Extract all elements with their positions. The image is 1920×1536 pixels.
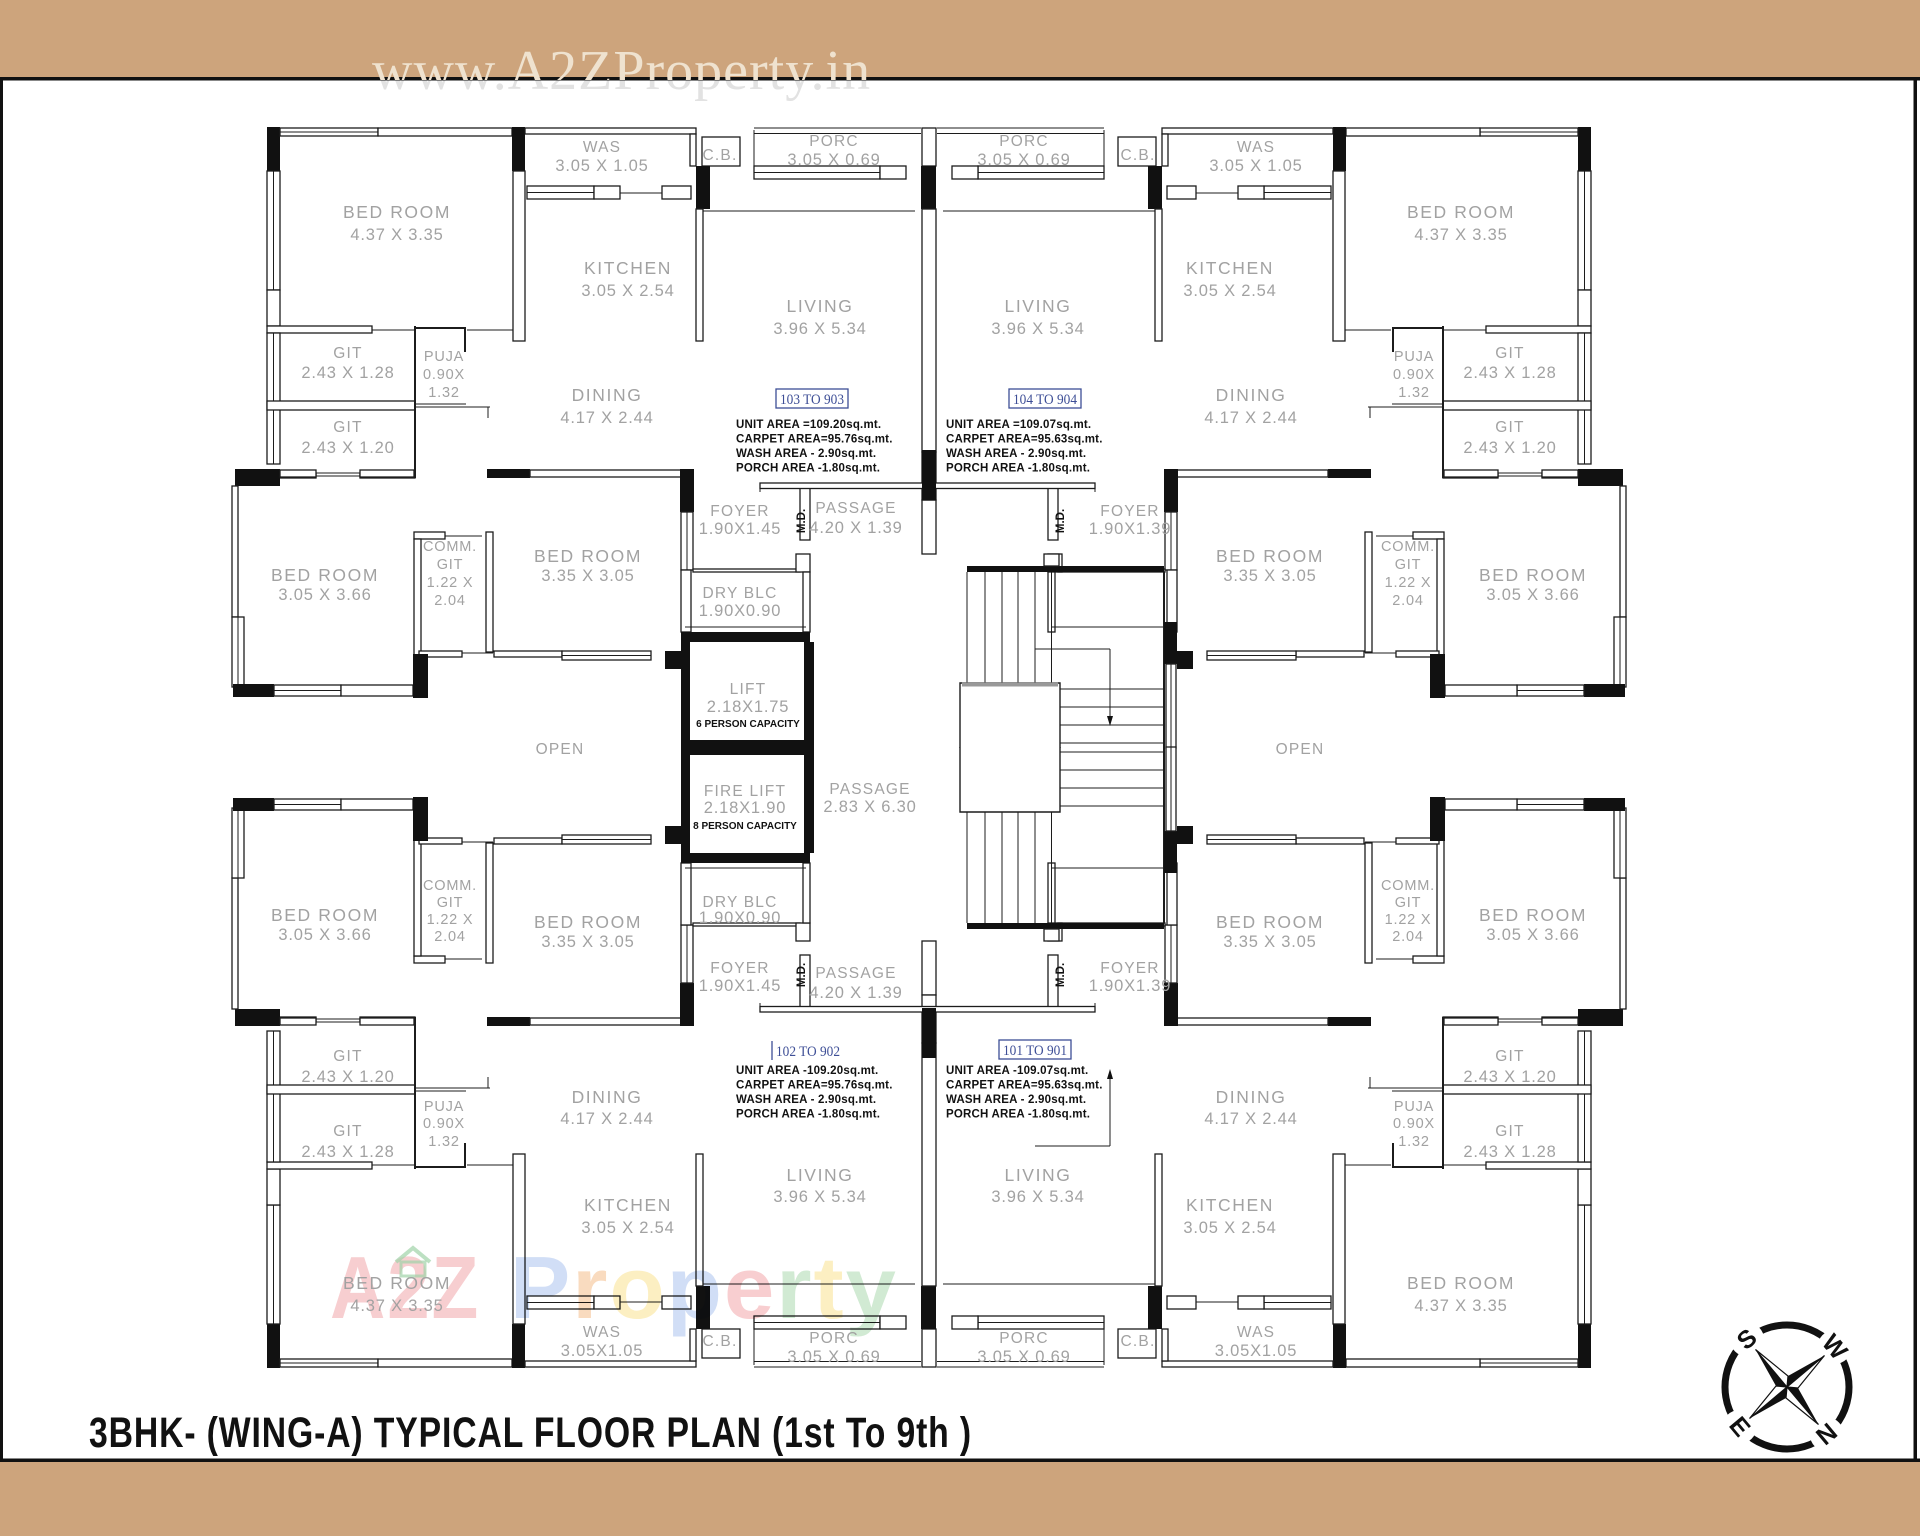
- svg-text:Property: Property: [510, 1238, 898, 1337]
- svg-text:3.05 X 2.54: 3.05 X 2.54: [581, 1219, 674, 1237]
- svg-text:BED ROOM: BED ROOM: [1407, 202, 1515, 222]
- svg-text:2.43 X 1.20: 2.43 X 1.20: [301, 439, 394, 457]
- svg-text:LIVING: LIVING: [1005, 296, 1072, 316]
- svg-text:OPEN: OPEN: [1276, 741, 1325, 758]
- svg-text:PUJA: PUJA: [1394, 349, 1434, 365]
- svg-text:PORCH AREA -1.80sq.mt.: PORCH AREA -1.80sq.mt.: [736, 1109, 880, 1121]
- svg-text:103 TO 903: 103 TO 903: [780, 392, 844, 408]
- svg-text:FIRE LIFT: FIRE LIFT: [704, 783, 786, 800]
- svg-text:LIVING: LIVING: [787, 1165, 854, 1185]
- svg-text:GIT: GIT: [333, 1048, 362, 1065]
- svg-text:BED ROOM: BED ROOM: [271, 565, 379, 585]
- svg-text:WASH AREA - 2.90sq.mt.: WASH AREA - 2.90sq.mt.: [736, 448, 876, 460]
- svg-text:0.90X: 0.90X: [1393, 1116, 1435, 1132]
- svg-text:FOYER: FOYER: [710, 503, 769, 520]
- svg-text:4.37 X 3.35: 4.37 X 3.35: [1414, 1297, 1507, 1315]
- svg-text:3.05 X 3.66: 3.05 X 3.66: [278, 926, 371, 944]
- svg-text:DINING: DINING: [1216, 385, 1287, 405]
- svg-text:3.35 X 3.05: 3.35 X 3.05: [541, 933, 634, 951]
- svg-text:104 TO 904: 104 TO 904: [1013, 392, 1077, 408]
- svg-text:BED ROOM: BED ROOM: [534, 546, 642, 566]
- svg-text:2.04: 2.04: [1392, 929, 1423, 945]
- svg-text:GIT: GIT: [1495, 345, 1524, 362]
- svg-text:2.18X1.90: 2.18X1.90: [704, 799, 786, 817]
- svg-text:1.22 X: 1.22 X: [427, 575, 474, 591]
- svg-text:4.37 X 3.35: 4.37 X 3.35: [350, 226, 443, 244]
- svg-text:3.96 X 5.34: 3.96 X 5.34: [773, 1188, 866, 1206]
- svg-text:PORC: PORC: [809, 1330, 859, 1347]
- svg-text:1.22 X: 1.22 X: [1385, 912, 1432, 928]
- svg-text:GIT: GIT: [333, 1123, 362, 1140]
- svg-text:3.05 X 0.69: 3.05 X 0.69: [977, 151, 1070, 169]
- svg-text:0.90X: 0.90X: [1393, 367, 1435, 383]
- svg-text:2.43 X 1.28: 2.43 X 1.28: [301, 1143, 394, 1161]
- svg-text:PORCH AREA -1.80sq.mt.: PORCH AREA -1.80sq.mt.: [946, 1109, 1090, 1121]
- svg-text:6 PERSON CAPACITY: 6 PERSON CAPACITY: [696, 719, 800, 730]
- svg-text:COMM.: COMM.: [423, 539, 477, 555]
- svg-text:PORCH AREA -1.80sq.mt.: PORCH AREA -1.80sq.mt.: [736, 463, 880, 475]
- svg-text:0.90X: 0.90X: [423, 1116, 465, 1132]
- svg-text:2.04: 2.04: [434, 593, 465, 609]
- svg-text:3.35 X 3.05: 3.35 X 3.05: [1223, 933, 1316, 951]
- svg-text:2.43 X 1.28: 2.43 X 1.28: [301, 364, 394, 382]
- svg-text:2.04: 2.04: [434, 929, 465, 945]
- svg-text:PORC: PORC: [999, 133, 1049, 150]
- svg-text:2.43 X 1.20: 2.43 X 1.20: [301, 1068, 394, 1086]
- svg-text:4.17 X 2.44: 4.17 X 2.44: [560, 1110, 653, 1128]
- svg-text:1.32: 1.32: [1398, 1134, 1429, 1150]
- svg-text:GIT: GIT: [333, 419, 362, 436]
- svg-text:3.96 X 5.34: 3.96 X 5.34: [991, 1188, 1084, 1206]
- svg-text:CARPET AREA=95.63sq.mt.: CARPET AREA=95.63sq.mt.: [946, 1080, 1103, 1092]
- svg-text:3.05 X 3.66: 3.05 X 3.66: [1486, 586, 1579, 604]
- svg-text:GIT: GIT: [1495, 419, 1524, 436]
- svg-text:1.32: 1.32: [428, 385, 459, 401]
- svg-text:BED ROOM: BED ROOM: [271, 905, 379, 925]
- svg-text:OPEN: OPEN: [536, 741, 585, 758]
- svg-text:GIT: GIT: [437, 895, 464, 911]
- svg-text:101 TO 901: 101 TO 901: [1003, 1043, 1067, 1059]
- svg-text:C.B.: C.B.: [703, 1333, 738, 1350]
- svg-text:LIVING: LIVING: [787, 296, 854, 316]
- svg-text:C.B.: C.B.: [1121, 147, 1156, 164]
- svg-text:UNIT AREA =109.07sq.mt.: UNIT AREA =109.07sq.mt.: [946, 419, 1091, 431]
- svg-text:M.D.: M.D.: [1055, 963, 1067, 987]
- svg-text:3.05 X 0.69: 3.05 X 0.69: [977, 1348, 1070, 1366]
- svg-text:2.43 X 1.28: 2.43 X 1.28: [1463, 1143, 1556, 1161]
- svg-text:PUJA: PUJA: [424, 349, 464, 365]
- svg-text:GIT: GIT: [333, 345, 362, 362]
- svg-text:3.05 X 1.05: 3.05 X 1.05: [1209, 157, 1302, 175]
- svg-text:1.22 X: 1.22 X: [1385, 575, 1432, 591]
- svg-text:C.B.: C.B.: [703, 147, 738, 164]
- svg-text:COMM.: COMM.: [1381, 539, 1435, 555]
- svg-text:M.D.: M.D.: [796, 963, 808, 987]
- svg-text:4.17 X 2.44: 4.17 X 2.44: [1204, 409, 1297, 427]
- svg-text:PASSAGE: PASSAGE: [829, 781, 910, 798]
- svg-text:3BHK- (WING-A) TYPICAL FLOOR P: 3BHK- (WING-A) TYPICAL FLOOR PLAN (1st T…: [89, 1409, 972, 1457]
- svg-text:PUJA: PUJA: [1394, 1099, 1434, 1115]
- svg-text:C.B.: C.B.: [1121, 1333, 1156, 1350]
- svg-text:2.18X1.75: 2.18X1.75: [707, 698, 789, 716]
- svg-text:DINING: DINING: [572, 1087, 643, 1107]
- svg-text:3.05 X 2.54: 3.05 X 2.54: [1183, 282, 1276, 300]
- svg-text:2.04: 2.04: [1392, 593, 1423, 609]
- svg-text:FOYER: FOYER: [1100, 503, 1159, 520]
- svg-text:PORCH AREA -1.80sq.mt.: PORCH AREA -1.80sq.mt.: [946, 463, 1090, 475]
- svg-text:M.D.: M.D.: [796, 509, 808, 533]
- svg-text:3.35 X 3.05: 3.35 X 3.05: [541, 567, 634, 585]
- svg-text:1.32: 1.32: [1398, 385, 1429, 401]
- svg-text:4.17 X 2.44: 4.17 X 2.44: [1204, 1110, 1297, 1128]
- svg-text:3.05X1.05: 3.05X1.05: [1215, 1342, 1297, 1360]
- svg-text:KITCHEN: KITCHEN: [1186, 1195, 1274, 1215]
- svg-text:BED ROOM: BED ROOM: [343, 1273, 451, 1293]
- svg-text:COMM.: COMM.: [1381, 878, 1435, 894]
- svg-text:2.43 X 1.28: 2.43 X 1.28: [1463, 364, 1556, 382]
- svg-text:3.96 X 5.34: 3.96 X 5.34: [991, 320, 1084, 338]
- svg-text:PORC: PORC: [809, 133, 859, 150]
- svg-text:WASH AREA - 2.90sq.mt.: WASH AREA - 2.90sq.mt.: [736, 1094, 876, 1106]
- svg-text:GIT: GIT: [1495, 1123, 1524, 1140]
- svg-text:WAS: WAS: [1237, 1324, 1275, 1341]
- svg-text:KITCHEN: KITCHEN: [584, 258, 672, 278]
- svg-text:3.05 X 3.66: 3.05 X 3.66: [1486, 926, 1579, 944]
- svg-text:FOYER: FOYER: [1100, 960, 1159, 977]
- svg-text:WASH AREA - 2.90sq.mt.: WASH AREA - 2.90sq.mt.: [946, 1094, 1086, 1106]
- svg-text:1.90X0.90: 1.90X0.90: [699, 909, 781, 927]
- svg-text:0.90X: 0.90X: [423, 367, 465, 383]
- svg-text:PASSAGE: PASSAGE: [815, 965, 896, 982]
- svg-text:3.05 X 0.69: 3.05 X 0.69: [787, 151, 880, 169]
- svg-text:FOYER: FOYER: [710, 960, 769, 977]
- svg-text:BED ROOM: BED ROOM: [1407, 1273, 1515, 1293]
- svg-text:WASH AREA - 2.90sq.mt.: WASH AREA - 2.90sq.mt.: [946, 448, 1086, 460]
- svg-text:BED ROOM: BED ROOM: [1479, 905, 1587, 925]
- svg-text:M.D.: M.D.: [1055, 509, 1067, 533]
- svg-text:DINING: DINING: [1216, 1087, 1287, 1107]
- svg-text:102 TO 902: 102 TO 902: [776, 1044, 840, 1060]
- svg-text:GIT: GIT: [1495, 1048, 1524, 1065]
- svg-text:GIT: GIT: [1395, 895, 1422, 911]
- svg-text:LIVING: LIVING: [1005, 1165, 1072, 1185]
- svg-text:3.05 X 2.54: 3.05 X 2.54: [1183, 1219, 1276, 1237]
- svg-text:1.90X1.45: 1.90X1.45: [699, 520, 781, 538]
- svg-text:4.17 X 2.44: 4.17 X 2.44: [560, 409, 653, 427]
- svg-text:3.35 X 3.05: 3.35 X 3.05: [1223, 567, 1316, 585]
- svg-text:UNIT AREA -109.20sq.mt.: UNIT AREA -109.20sq.mt.: [736, 1065, 878, 1077]
- svg-text:BED ROOM: BED ROOM: [343, 202, 451, 222]
- svg-text:4.37 X 3.35: 4.37 X 3.35: [350, 1297, 443, 1315]
- svg-text:PASSAGE: PASSAGE: [815, 500, 896, 517]
- svg-text:4.20 X 1.39: 4.20 X 1.39: [809, 984, 902, 1002]
- svg-text:KITCHEN: KITCHEN: [1186, 258, 1274, 278]
- svg-text:1.90X1.39: 1.90X1.39: [1089, 977, 1171, 995]
- svg-text:1.90X1.45: 1.90X1.45: [699, 977, 781, 995]
- svg-text:UNIT AREA -109.07sq.mt.: UNIT AREA -109.07sq.mt.: [946, 1065, 1088, 1077]
- svg-text:CARPET AREA=95.76sq.mt.: CARPET AREA=95.76sq.mt.: [736, 434, 893, 446]
- svg-text:2.43 X 1.20: 2.43 X 1.20: [1463, 1068, 1556, 1086]
- svg-text:COMM.: COMM.: [423, 878, 477, 894]
- svg-text:8 PERSON CAPACITY: 8 PERSON CAPACITY: [693, 821, 797, 832]
- svg-text:3.05 X 2.54: 3.05 X 2.54: [581, 282, 674, 300]
- svg-text:GIT: GIT: [1395, 557, 1422, 573]
- svg-text:1.90X1.39: 1.90X1.39: [1089, 520, 1171, 538]
- svg-text:PORC: PORC: [999, 1330, 1049, 1347]
- svg-text:1.90X0.90: 1.90X0.90: [699, 602, 781, 620]
- svg-text:4.20 X 1.39: 4.20 X 1.39: [809, 519, 902, 537]
- svg-text:BED ROOM: BED ROOM: [1479, 565, 1587, 585]
- svg-text:DINING: DINING: [572, 385, 643, 405]
- svg-text:2.83 X 6.30: 2.83 X 6.30: [823, 798, 916, 816]
- svg-text:CARPET AREA=95.63sq.mt.: CARPET AREA=95.63sq.mt.: [946, 434, 1103, 446]
- svg-text:UNIT AREA =109.20sq.mt.: UNIT AREA =109.20sq.mt.: [736, 419, 881, 431]
- svg-text:WAS: WAS: [583, 1324, 621, 1341]
- svg-text:3.05 X 0.69: 3.05 X 0.69: [787, 1348, 880, 1366]
- svg-text:3.05 X 1.05: 3.05 X 1.05: [555, 157, 648, 175]
- svg-text:CARPET AREA=95.76sq.mt.: CARPET AREA=95.76sq.mt.: [736, 1080, 893, 1092]
- svg-text:LIFT: LIFT: [730, 681, 767, 698]
- svg-text:3.05 X 3.66: 3.05 X 3.66: [278, 586, 371, 604]
- svg-text:KITCHEN: KITCHEN: [584, 1195, 672, 1215]
- svg-text:3.96 X 5.34: 3.96 X 5.34: [773, 320, 866, 338]
- svg-text:WAS: WAS: [583, 139, 621, 156]
- svg-text:4.37 X 3.35: 4.37 X 3.35: [1414, 226, 1507, 244]
- svg-text:DRY BLC: DRY BLC: [702, 585, 777, 602]
- svg-text:BED ROOM: BED ROOM: [1216, 912, 1324, 932]
- svg-text:WAS: WAS: [1237, 139, 1275, 156]
- svg-text:1.22 X: 1.22 X: [427, 912, 474, 928]
- svg-text:BED ROOM: BED ROOM: [1216, 546, 1324, 566]
- svg-text:3.05X1.05: 3.05X1.05: [561, 1342, 643, 1360]
- svg-text:1.32: 1.32: [428, 1134, 459, 1150]
- svg-text:2.43 X 1.20: 2.43 X 1.20: [1463, 439, 1556, 457]
- svg-text:BED ROOM: BED ROOM: [534, 912, 642, 932]
- svg-text:PUJA: PUJA: [424, 1099, 464, 1115]
- svg-text:GIT: GIT: [437, 557, 464, 573]
